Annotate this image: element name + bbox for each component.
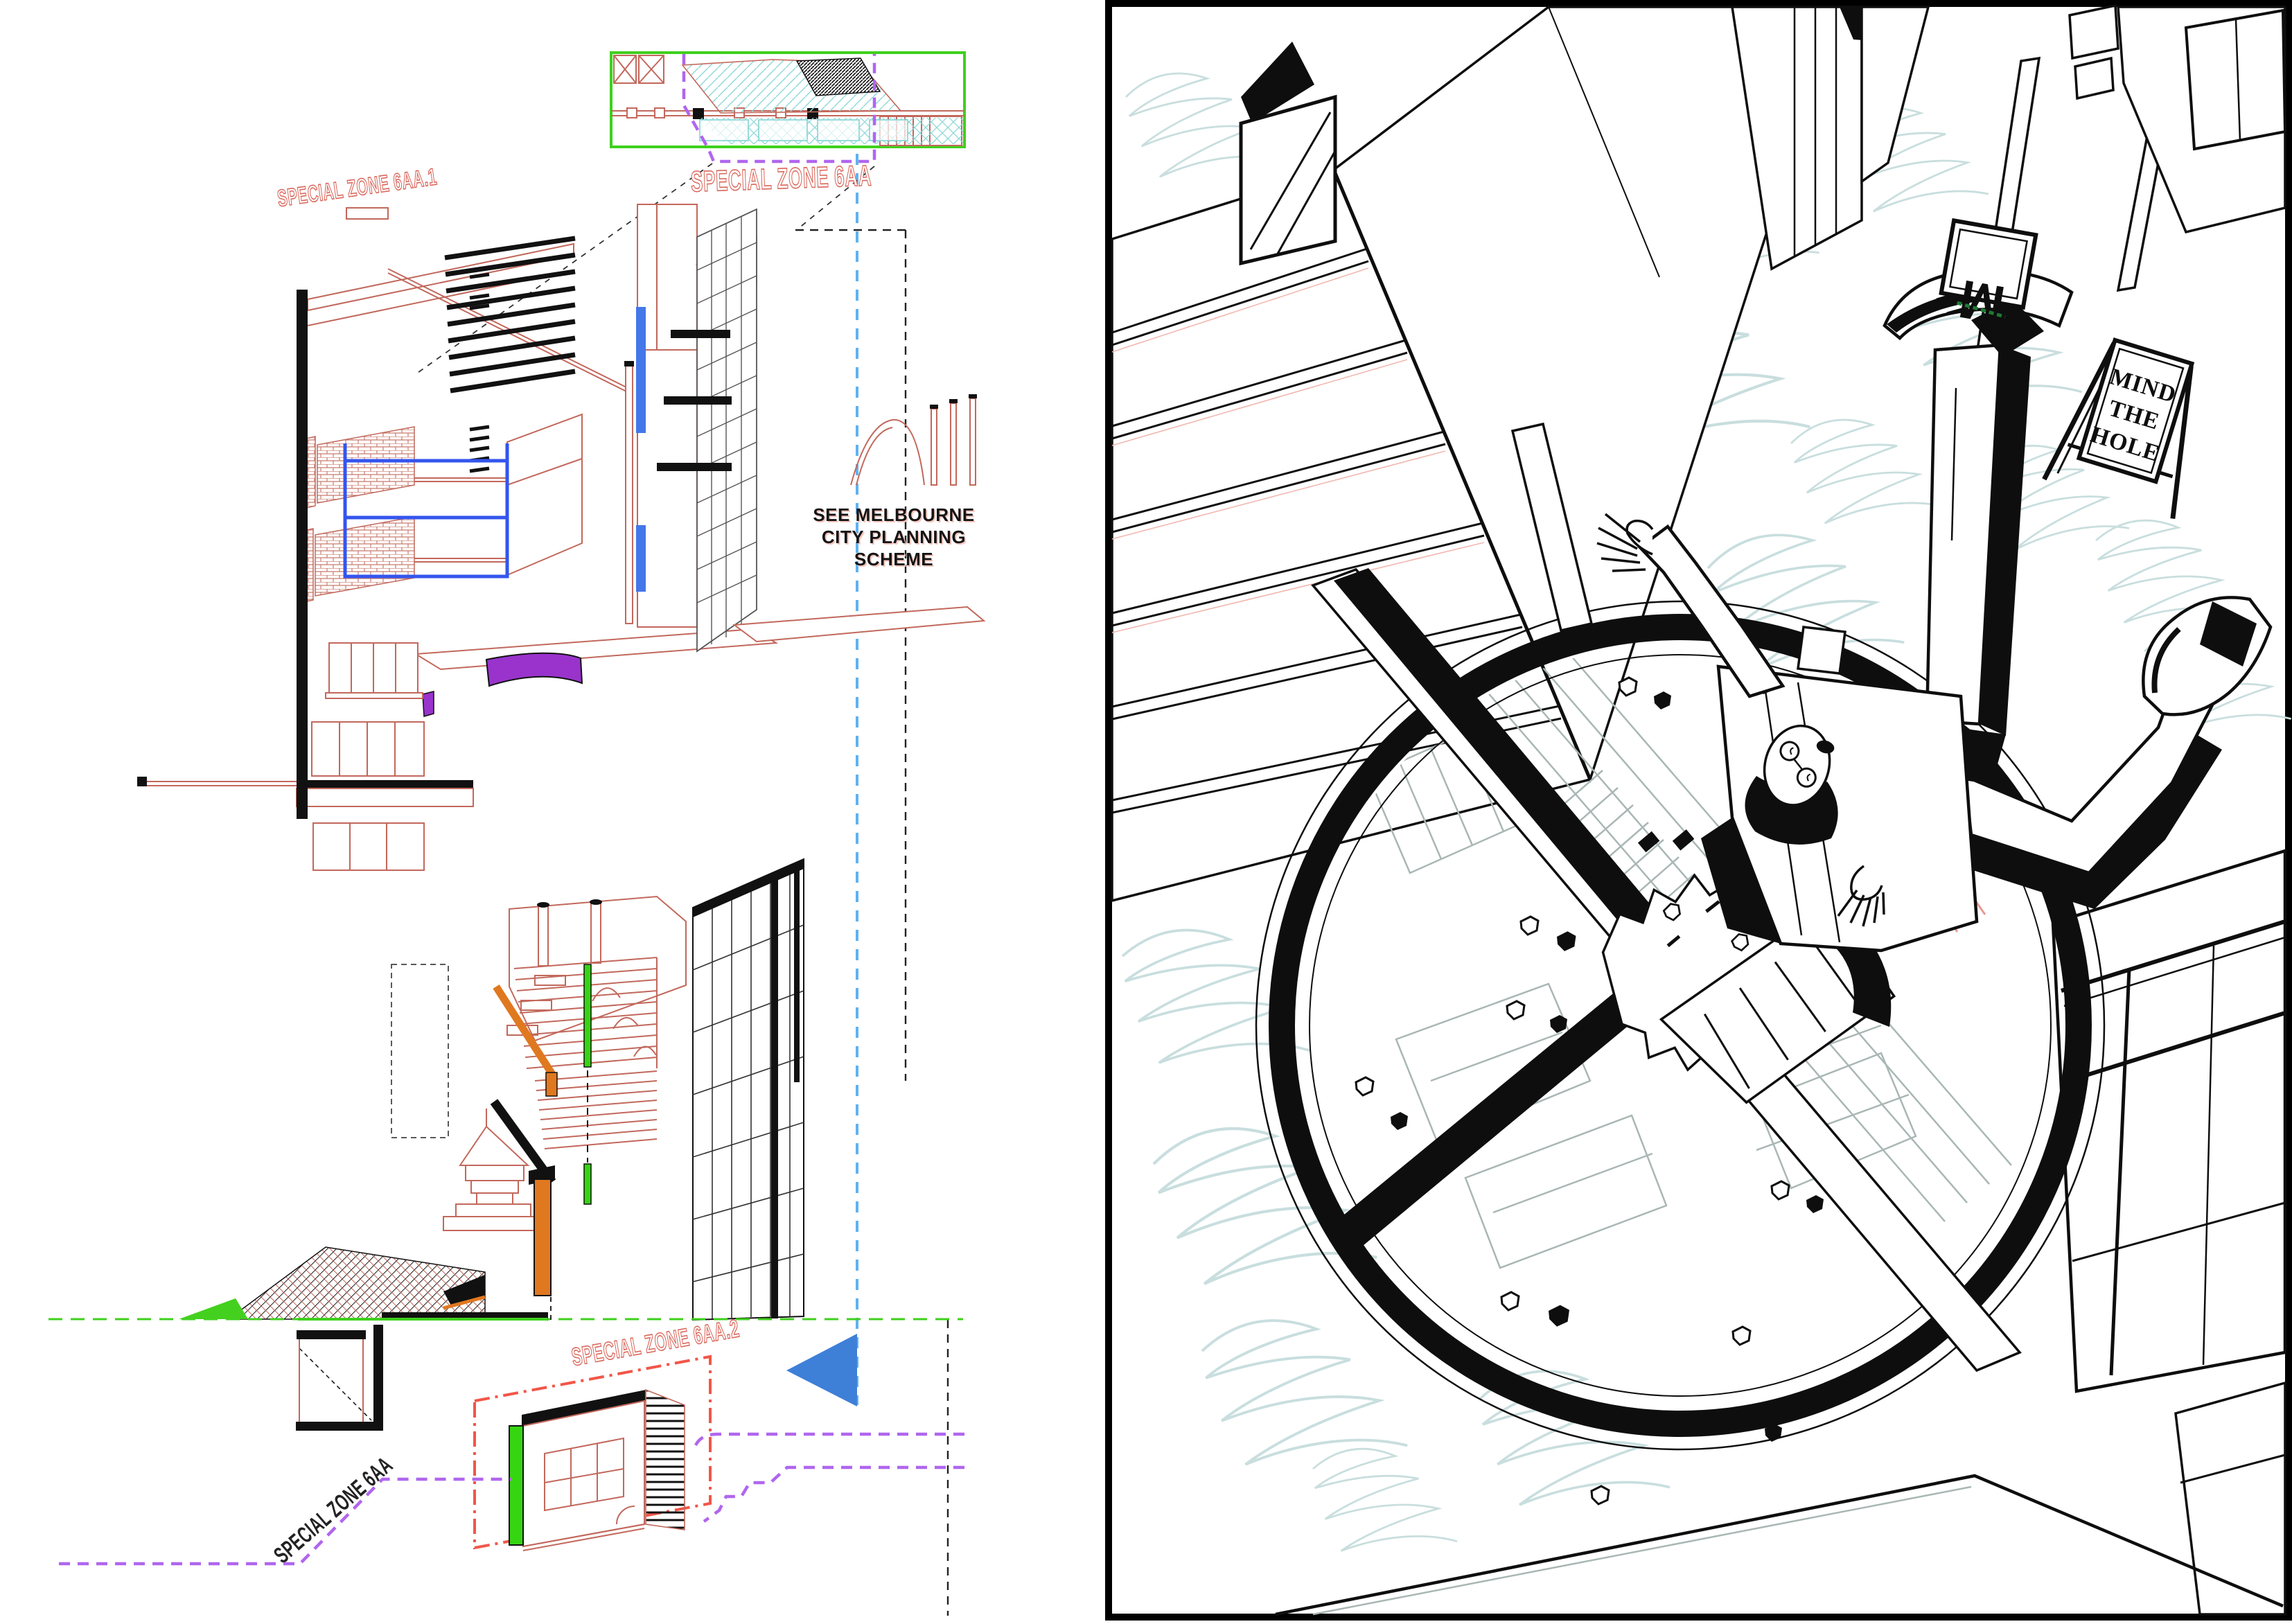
apron-strap xyxy=(1798,627,1845,673)
note-line2: CITY PLANNING xyxy=(822,527,966,547)
blue-datum-marker xyxy=(786,1334,857,1406)
green-ground-marker xyxy=(179,1298,248,1319)
note-line1: SEE MELBOURNE xyxy=(813,504,974,525)
green-bar-upper xyxy=(584,964,591,1067)
zone2-detail xyxy=(475,1357,710,1551)
blue-bar-lower xyxy=(636,525,646,592)
green-bar-lower xyxy=(584,1164,591,1204)
zone-6aa-text: SPECIAL ZONE 6AA xyxy=(690,159,872,198)
stair-assembly xyxy=(391,897,686,1321)
planning-drawing-svg: SPECIAL ZONE 6AA.1 SPECIAL ZONE 6AA SEE … xyxy=(0,0,1105,1621)
illustration-panel: M MIND THE HOLE xyxy=(1105,0,2292,1624)
blue-bar-upper xyxy=(636,307,646,433)
site-plan xyxy=(611,53,964,161)
ground-section xyxy=(49,1247,963,1431)
zone-6aa2-text: SPECIAL ZONE 6AA.2 xyxy=(570,1315,741,1372)
purple-awning xyxy=(486,653,582,686)
axonometric-drawing-panel: SPECIAL ZONE 6AA.1 SPECIAL ZONE 6AA SEE … xyxy=(0,0,1105,1624)
artwork-canvas: { "canvas": {"width": 3308, "height": 23… xyxy=(0,0,2292,1621)
label-zone-6aa: SPECIAL ZONE 6AA xyxy=(690,159,872,198)
label-planning-note: SEE MELBOURNE CITY PLANNING SCHEME xyxy=(813,504,974,570)
section-spine xyxy=(297,290,308,819)
label-zone-rotated: SPECIAL ZONE 6AA xyxy=(268,1451,397,1569)
central-tower xyxy=(636,204,984,1320)
zone-6aa1-text: SPECIAL ZONE 6AA.1 xyxy=(276,163,439,211)
green-bar-zone2 xyxy=(509,1426,523,1545)
label-zone-6aa1: SPECIAL ZONE 6AA.1 xyxy=(276,163,439,211)
zone-rotated-text: SPECIAL ZONE 6AA xyxy=(268,1451,397,1569)
orange-column xyxy=(534,1179,551,1296)
note-line3: SCHEME xyxy=(854,549,933,570)
falling-man-svg: M MIND THE HOLE xyxy=(1105,0,2292,1621)
label-zone-6aa2: SPECIAL ZONE 6AA.2 xyxy=(570,1315,741,1372)
